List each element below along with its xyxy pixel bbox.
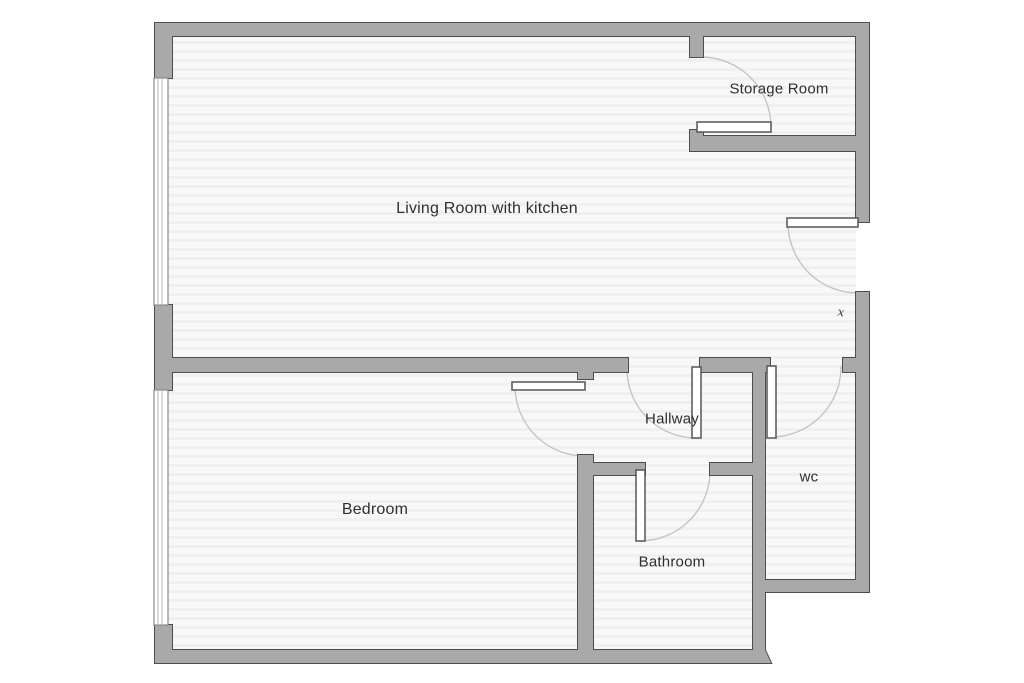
wall-fill-outer-right-upper: [856, 36, 869, 222]
living-room-window: [154, 78, 168, 305]
floor-area-lower-floor: [168, 592, 753, 650]
bedroom-window-frame: [154, 390, 168, 625]
wall-fill-outer-bottom: [155, 650, 765, 663]
wall-fill-bedroom-bath-wall: [578, 455, 593, 650]
bedroom-window: [154, 390, 168, 625]
bathroom-door-leaf: [636, 470, 645, 541]
wall-fill-outer-top: [155, 23, 869, 36]
wall-fill-wc-bottom: [753, 580, 869, 592]
wall-fill-main-divider: [155, 358, 628, 372]
wall-fill-storage-stub-top: [690, 36, 703, 57]
wall-fill-hallway-top: [700, 358, 770, 372]
room-label-storage-room: Storage Room: [729, 81, 828, 98]
floor-plan-svg: [0, 0, 1024, 683]
room-label-living-room: Living Room with kitchen: [396, 200, 578, 218]
wall-fill-bathroom-top-right: [710, 463, 765, 475]
room-label-bathroom: Bathroom: [639, 554, 706, 571]
room-label-bedroom: Bedroom: [342, 501, 408, 519]
wall-fill-outer-left-middle: [155, 305, 172, 390]
wall-fill-bedroom-hall-stub: [578, 372, 593, 379]
bedroom-door-leaf: [512, 382, 585, 390]
storage-door-leaf: [697, 122, 771, 132]
wall-fill-outer-right-lower: [856, 292, 869, 580]
wall-fill-outer-left-upper: [155, 36, 172, 78]
wall-fill-storage-bottom: [690, 136, 869, 151]
floor-plan-canvas: Living Room with kitchen Storage Room Ha…: [0, 0, 1024, 683]
room-label-hallway: Hallway: [645, 411, 699, 428]
wc-door-leaf: [767, 366, 776, 438]
living-room-window-frame: [154, 78, 168, 305]
entry-door-leaf: [787, 218, 858, 227]
wall-fill-wc-top-stub: [843, 358, 856, 372]
room-label-wc: wc: [800, 469, 819, 486]
wall-fill-hall-wc-wall: [753, 372, 765, 650]
